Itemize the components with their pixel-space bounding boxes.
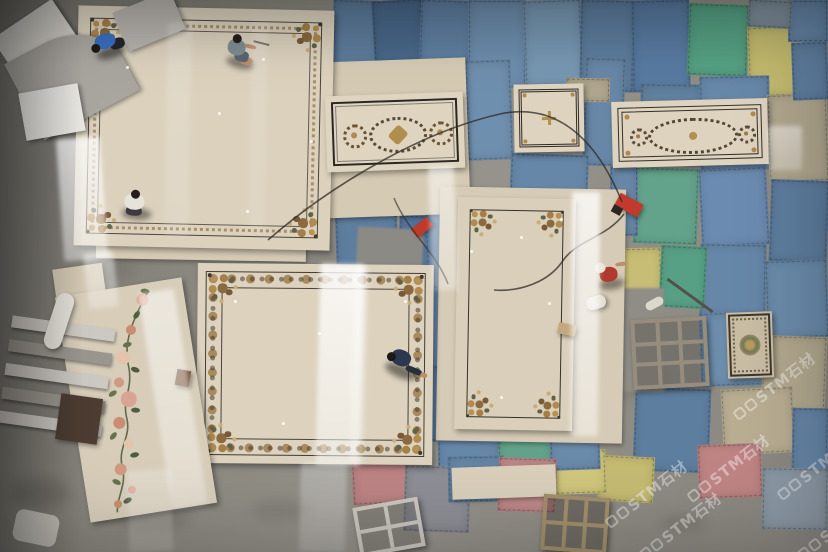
wood-crate xyxy=(540,494,610,552)
flora-dot xyxy=(468,400,475,407)
floor-stain xyxy=(300,250,340,262)
flora-dot xyxy=(292,34,296,38)
flora-dot xyxy=(471,394,476,399)
floor-stain xyxy=(660,515,706,531)
rosette-center xyxy=(636,135,640,139)
flora-dot xyxy=(543,401,551,409)
corner-floral-ornament xyxy=(530,388,561,419)
white-speck xyxy=(234,300,237,303)
cloth xyxy=(11,508,61,548)
corner-floral-ornament xyxy=(466,387,497,418)
foam-mat xyxy=(631,0,691,92)
marble-workshop-aerial-photo: STM石材STM石材STM石材STM石材STM石材STM石材 xyxy=(0,0,828,552)
rosette-motif xyxy=(630,128,648,146)
white-speck xyxy=(500,396,503,399)
flora-dot xyxy=(306,48,310,52)
scroll-medallion xyxy=(648,117,739,155)
flora-dot xyxy=(407,425,411,429)
white-speck xyxy=(246,210,249,213)
worker-part xyxy=(253,40,269,46)
foam-mat xyxy=(761,467,828,530)
flora-dot xyxy=(309,219,317,227)
flora-dot xyxy=(219,274,227,282)
flora-dot xyxy=(557,415,561,419)
floor-stain xyxy=(250,500,310,520)
flora-dot xyxy=(91,208,96,213)
flora-dot xyxy=(86,230,90,234)
corner-floral-ornament xyxy=(288,22,323,57)
medallion-core xyxy=(388,124,409,145)
flora-dot xyxy=(107,224,112,229)
rosette-center xyxy=(744,132,748,136)
flora-dot xyxy=(412,429,417,434)
worker-white-shirt xyxy=(115,188,164,229)
grid-bar xyxy=(655,323,662,385)
border-frame xyxy=(335,102,455,162)
corner-accent xyxy=(523,139,527,143)
watermark-logo-icon xyxy=(638,546,653,552)
grid-bar xyxy=(678,321,685,383)
worker-part xyxy=(244,43,257,50)
flora-dot xyxy=(537,221,541,225)
flora-dot xyxy=(318,22,322,26)
corner-accent xyxy=(751,147,756,152)
corner-accent xyxy=(625,151,630,156)
flora-dot xyxy=(470,209,474,213)
grid-bar xyxy=(636,360,704,368)
dark-slab xyxy=(55,393,103,444)
foam-mat xyxy=(698,166,770,247)
medallion-core xyxy=(689,132,697,140)
foam-mat xyxy=(699,243,766,316)
border-frame xyxy=(617,104,762,162)
flora-dot xyxy=(311,43,316,48)
flora-dot xyxy=(479,219,487,227)
flora-dot xyxy=(208,273,212,277)
flora-dot xyxy=(420,275,424,279)
flora-dot xyxy=(541,215,546,220)
flora-dot xyxy=(313,25,320,32)
flora-dot xyxy=(493,220,497,224)
rosette-motif xyxy=(343,124,368,149)
foam-mat xyxy=(523,0,584,87)
flora-dot xyxy=(489,404,493,408)
flora-dot xyxy=(219,299,223,303)
white-speck xyxy=(548,302,551,305)
flora-dot xyxy=(218,423,222,427)
flora-dot xyxy=(209,444,216,451)
corner-accent xyxy=(624,115,629,120)
flora-dot xyxy=(308,212,313,217)
flora-dot xyxy=(396,444,401,449)
flora-dot xyxy=(476,400,484,408)
worker-part xyxy=(615,261,627,267)
border-frame xyxy=(331,98,459,166)
foam-mat xyxy=(765,259,828,339)
flora-dot xyxy=(98,225,106,233)
flora-dot xyxy=(539,399,545,405)
flora-dot xyxy=(218,444,226,452)
flora-dot xyxy=(87,214,95,222)
flora-dot xyxy=(104,212,111,219)
foam-mat xyxy=(658,245,707,309)
flora-dot xyxy=(399,290,406,297)
corner-accent xyxy=(750,111,755,116)
flora-dot xyxy=(208,433,216,441)
flora-dot xyxy=(418,451,422,455)
flora-dot xyxy=(98,204,102,208)
flora-dot xyxy=(93,20,100,27)
white-speck xyxy=(520,236,523,239)
white-speck xyxy=(560,218,563,221)
white-speck xyxy=(126,66,129,69)
panel-vertical-center xyxy=(454,197,576,431)
flora-dot xyxy=(413,296,418,301)
flora-dot xyxy=(534,405,538,409)
border-frame xyxy=(621,108,758,158)
corner-floral-ornament xyxy=(388,421,422,455)
grid-bar xyxy=(546,520,604,528)
flora-dot xyxy=(217,434,226,443)
flora-dot xyxy=(550,234,554,238)
border-frame xyxy=(466,209,564,419)
panel-long-top xyxy=(611,98,769,168)
flora-dot xyxy=(469,409,475,415)
flora-dot xyxy=(298,229,306,237)
foam-mat xyxy=(766,93,828,183)
panel-small-top xyxy=(513,83,584,152)
flora-dot xyxy=(213,294,218,299)
rosette-motif xyxy=(738,125,756,143)
flora-dot xyxy=(232,438,236,442)
watermark-logo-icon xyxy=(615,505,630,520)
white-speck xyxy=(282,422,285,425)
worker-red-shirt xyxy=(590,255,641,299)
flora-dot xyxy=(403,446,411,454)
flora-dot xyxy=(398,433,405,440)
flora-dot xyxy=(547,392,551,396)
white-speck xyxy=(310,140,313,143)
flora-dot xyxy=(546,220,554,228)
flora-dot xyxy=(466,414,470,418)
watermark-logo-icon xyxy=(807,537,822,552)
rosette-center xyxy=(437,129,443,135)
foam-mat xyxy=(769,179,828,263)
flora-dot xyxy=(552,401,559,408)
flora-dot xyxy=(292,227,297,232)
foam-mat xyxy=(419,0,473,65)
corner-floral-ornament xyxy=(284,204,319,239)
flora-dot xyxy=(313,34,321,42)
corner-accent xyxy=(523,93,527,97)
foam-mat xyxy=(788,0,828,42)
rug-medallion xyxy=(738,333,763,358)
flora-dot xyxy=(398,280,403,285)
corner-accent xyxy=(571,93,575,97)
flora-dot xyxy=(413,435,421,443)
white-speck xyxy=(318,332,321,335)
corner-floral-ornament xyxy=(389,275,423,309)
flora-dot xyxy=(229,278,234,283)
panel-horizontal-top xyxy=(325,92,466,173)
panel-rug-tile xyxy=(726,311,774,379)
flora-dot xyxy=(394,286,398,290)
flora-dot xyxy=(225,431,232,438)
flora-dot xyxy=(226,289,233,296)
floor-stain xyxy=(10,478,70,508)
flora-dot xyxy=(212,427,217,432)
flora-dot xyxy=(477,409,484,416)
rack-slat xyxy=(4,363,109,389)
flora-dot xyxy=(227,443,232,448)
foam-mat xyxy=(464,59,513,161)
white-speck xyxy=(404,300,407,303)
cross-motif-h xyxy=(542,116,556,119)
flora-dot xyxy=(302,23,310,31)
flora-dot xyxy=(555,221,562,228)
flora-dot xyxy=(413,446,420,453)
flora-dot xyxy=(472,212,478,218)
flora-dot xyxy=(209,285,217,293)
rosette-motif xyxy=(429,121,454,146)
center-medallion xyxy=(368,116,427,154)
white-tile xyxy=(18,83,85,141)
flora-dot xyxy=(297,38,304,45)
flora-dot xyxy=(408,301,412,305)
flora-dot xyxy=(218,284,227,293)
grid-bar xyxy=(635,339,703,347)
foam-mat xyxy=(697,443,763,499)
cross-motif-v xyxy=(547,111,550,125)
border-frame xyxy=(518,88,579,147)
flora-dot xyxy=(298,218,307,227)
watermark-logo-icon xyxy=(649,537,664,552)
flora-dot xyxy=(537,409,542,414)
flora-dot xyxy=(546,212,553,219)
white-speck xyxy=(470,250,473,253)
flora-dot xyxy=(302,32,311,41)
flora-dot xyxy=(403,435,412,444)
flora-dot xyxy=(485,408,490,413)
flora-dot xyxy=(314,234,318,238)
flora-dot xyxy=(288,222,292,226)
flora-dot xyxy=(234,285,238,289)
flora-dot xyxy=(543,410,550,417)
flora-dot xyxy=(488,214,493,219)
flora-dot xyxy=(404,285,413,294)
white-speck xyxy=(262,58,265,61)
flora-dot xyxy=(480,211,487,218)
flora-dot xyxy=(552,411,558,417)
flora-dot xyxy=(560,211,564,215)
foam-mat xyxy=(687,3,749,77)
flora-dot xyxy=(415,277,422,284)
flora-dot xyxy=(309,229,316,236)
flora-dot xyxy=(414,287,422,295)
flora-dot xyxy=(96,214,105,223)
metal-grid-rack xyxy=(630,316,710,390)
flora-dot xyxy=(88,224,95,231)
flora-dot xyxy=(392,439,396,443)
marble-backing-tile xyxy=(451,464,556,500)
flora-dot xyxy=(480,232,484,236)
corner-floral-ornament xyxy=(469,209,500,240)
white-speck xyxy=(218,112,221,115)
corner-accent xyxy=(571,139,575,143)
brown-chip xyxy=(175,369,192,387)
flora-dot xyxy=(542,224,548,230)
flora-dot xyxy=(471,220,478,227)
flora-dot xyxy=(303,208,307,212)
flora-dot xyxy=(554,229,559,234)
flora-dot xyxy=(474,228,479,233)
corner-floral-ornament xyxy=(206,419,240,453)
flora-dot xyxy=(90,18,94,22)
flora-dot xyxy=(483,398,489,404)
flora-dot xyxy=(293,216,300,223)
flora-dot xyxy=(296,27,301,32)
watermark-logo-icon xyxy=(796,546,811,552)
flora-dot xyxy=(477,391,481,395)
corner-floral-ornament xyxy=(533,210,564,241)
flora-dot xyxy=(551,396,556,401)
flora-dot xyxy=(210,276,217,283)
foam-mat xyxy=(791,41,828,100)
flora-dot xyxy=(404,276,412,284)
foam-mat xyxy=(747,0,792,29)
rosette-center xyxy=(351,132,357,138)
flora-dot xyxy=(486,223,492,229)
